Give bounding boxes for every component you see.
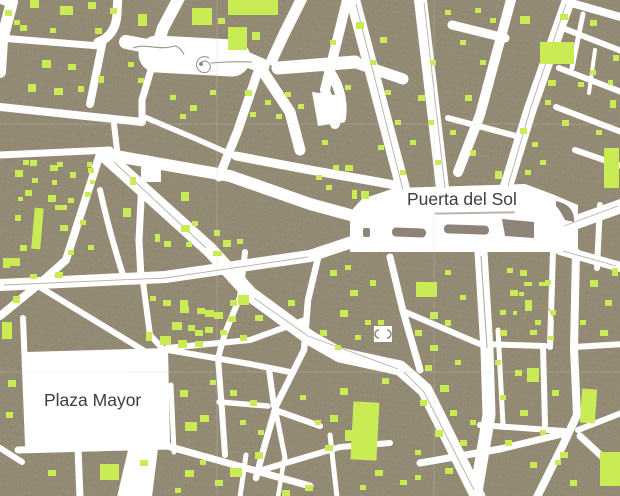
svg-text:Plaza Mayor: Plaza Mayor xyxy=(44,390,141,410)
svg-text:Puerta del Sol: Puerta del Sol xyxy=(407,189,517,209)
